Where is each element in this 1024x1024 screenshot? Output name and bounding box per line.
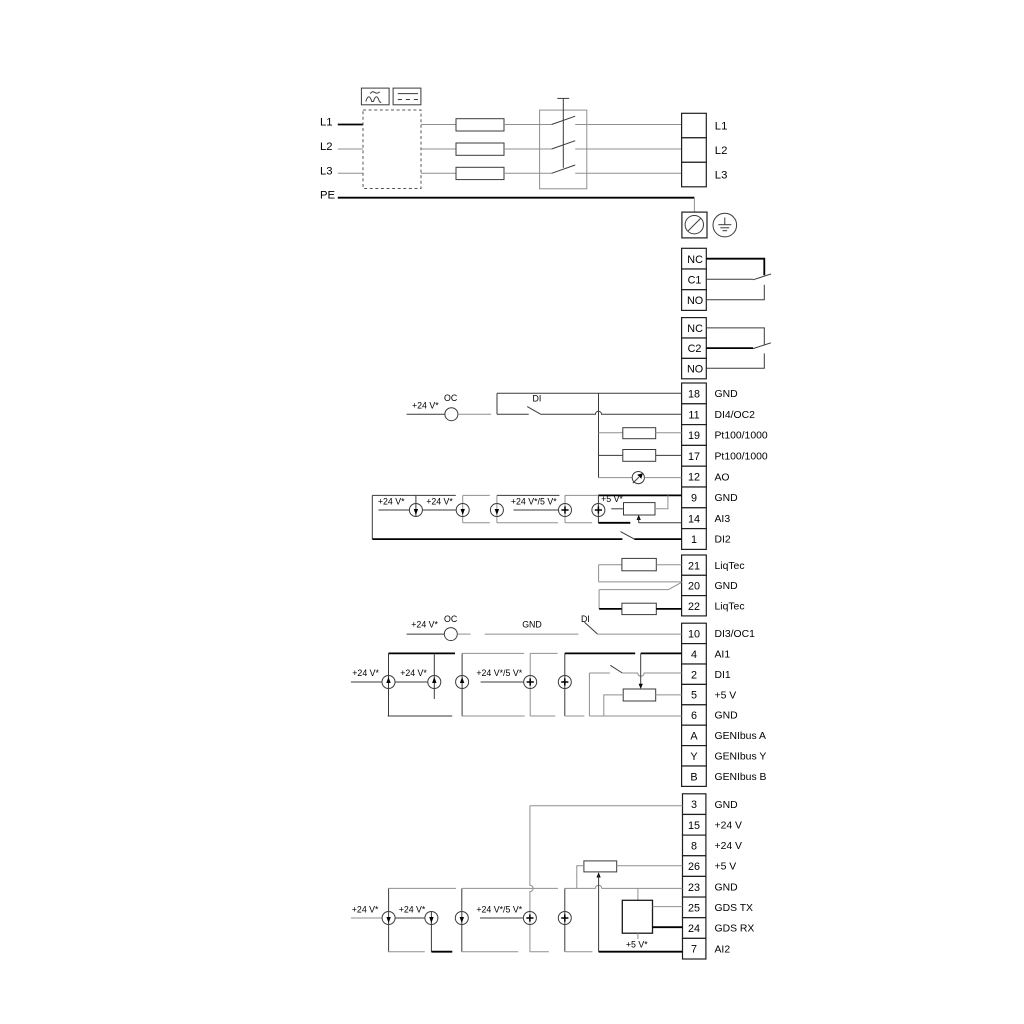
- svg-text:DI1: DI1: [715, 670, 731, 681]
- svg-text:LiqTec: LiqTec: [715, 561, 745, 572]
- svg-text:+5 V*: +5 V*: [601, 494, 623, 504]
- svg-text:OC: OC: [444, 614, 458, 624]
- svg-text:Pt100/1000: Pt100/1000: [715, 452, 768, 463]
- svg-text:19: 19: [688, 430, 700, 442]
- svg-text:AI1: AI1: [715, 650, 731, 661]
- svg-text:GENIbus A: GENIbus A: [715, 731, 766, 742]
- svg-text:GND: GND: [715, 389, 738, 400]
- svg-text:6: 6: [691, 710, 697, 722]
- svg-text:9: 9: [691, 493, 697, 505]
- svg-text:GND: GND: [715, 882, 738, 893]
- svg-text:23: 23: [688, 882, 700, 894]
- svg-text:+24 V: +24 V: [715, 820, 743, 831]
- svg-text:GND: GND: [522, 620, 542, 630]
- svg-text:1: 1: [691, 534, 697, 546]
- svg-text:+24 V*: +24 V*: [412, 400, 439, 410]
- svg-text:DI4/OC2: DI4/OC2: [715, 410, 756, 421]
- svg-text:14: 14: [688, 513, 700, 525]
- svg-text:L2: L2: [715, 145, 728, 157]
- svg-text:L1: L1: [320, 116, 333, 128]
- svg-text:+5 V*: +5 V*: [626, 939, 648, 949]
- svg-text:AO: AO: [715, 472, 730, 483]
- svg-text:+24 V*: +24 V*: [411, 620, 438, 630]
- svg-text:+24 V: +24 V: [715, 841, 743, 852]
- svg-text:3: 3: [691, 799, 697, 811]
- svg-text:20: 20: [688, 581, 700, 593]
- svg-text:DI: DI: [533, 394, 542, 404]
- svg-text:NC: NC: [687, 254, 703, 266]
- svg-text:AI3: AI3: [715, 514, 731, 525]
- svg-text:15: 15: [688, 820, 700, 832]
- svg-text:A: A: [690, 731, 698, 743]
- svg-text:L1: L1: [715, 121, 728, 133]
- svg-text:10: 10: [688, 629, 700, 641]
- svg-text:GENIbus Y: GENIbus Y: [715, 752, 767, 763]
- svg-text:L3: L3: [320, 165, 333, 177]
- svg-text:NO: NO: [687, 364, 703, 376]
- svg-text:+24 V*: +24 V*: [400, 668, 427, 678]
- svg-text:Y: Y: [690, 751, 697, 763]
- svg-text:11: 11: [688, 409, 699, 421]
- svg-text:7: 7: [691, 944, 697, 956]
- svg-text:GND: GND: [715, 581, 738, 592]
- svg-text:24: 24: [688, 923, 700, 935]
- svg-text:2: 2: [691, 669, 697, 681]
- svg-text:C2: C2: [688, 343, 702, 355]
- svg-text:NO: NO: [687, 295, 703, 307]
- svg-text:26: 26: [688, 861, 700, 873]
- svg-text:+24 V*: +24 V*: [426, 497, 453, 507]
- svg-text:12: 12: [688, 472, 700, 484]
- svg-text:NC: NC: [687, 323, 703, 335]
- svg-text:L2: L2: [320, 141, 333, 153]
- svg-text:B: B: [690, 771, 697, 783]
- svg-text:L3: L3: [715, 170, 728, 182]
- svg-text:5: 5: [691, 690, 697, 702]
- svg-text:GND: GND: [715, 493, 738, 504]
- svg-text:AI2: AI2: [715, 944, 731, 955]
- svg-text:GND: GND: [715, 800, 738, 811]
- svg-text:4: 4: [691, 649, 697, 661]
- svg-text:PE: PE: [320, 190, 336, 202]
- svg-text:LiqTec: LiqTec: [715, 602, 745, 613]
- svg-text:+24 V*/5 V*: +24 V*/5 V*: [476, 668, 522, 678]
- svg-text:GDS TX: GDS TX: [715, 903, 754, 914]
- svg-text:Pt100/1000: Pt100/1000: [715, 431, 768, 442]
- svg-text:+24 V*: +24 V*: [352, 904, 379, 914]
- svg-text:22: 22: [688, 601, 700, 613]
- svg-text:GDS RX: GDS RX: [715, 924, 755, 935]
- svg-text:+24 V*: +24 V*: [399, 904, 426, 914]
- svg-text:25: 25: [688, 902, 700, 914]
- svg-text:DI3/OC1: DI3/OC1: [715, 629, 756, 640]
- svg-text:+24 V*/5 V*: +24 V*/5 V*: [511, 497, 557, 507]
- svg-text:+5 V: +5 V: [715, 690, 737, 701]
- svg-text:18: 18: [688, 389, 700, 401]
- svg-text:GND: GND: [715, 711, 738, 722]
- svg-text:DI2: DI2: [715, 535, 731, 546]
- svg-text:8: 8: [691, 841, 697, 853]
- svg-text:+24 V*: +24 V*: [378, 497, 405, 507]
- svg-text:+5 V: +5 V: [715, 862, 737, 873]
- svg-text:17: 17: [688, 451, 700, 463]
- svg-text:GENIbus B: GENIbus B: [715, 772, 767, 783]
- svg-text:+24 V*/5 V*: +24 V*/5 V*: [476, 904, 522, 914]
- svg-text:C1: C1: [688, 275, 702, 287]
- svg-text:+24 V*: +24 V*: [352, 668, 379, 678]
- svg-text:21: 21: [688, 560, 700, 572]
- svg-text:OC: OC: [444, 393, 458, 403]
